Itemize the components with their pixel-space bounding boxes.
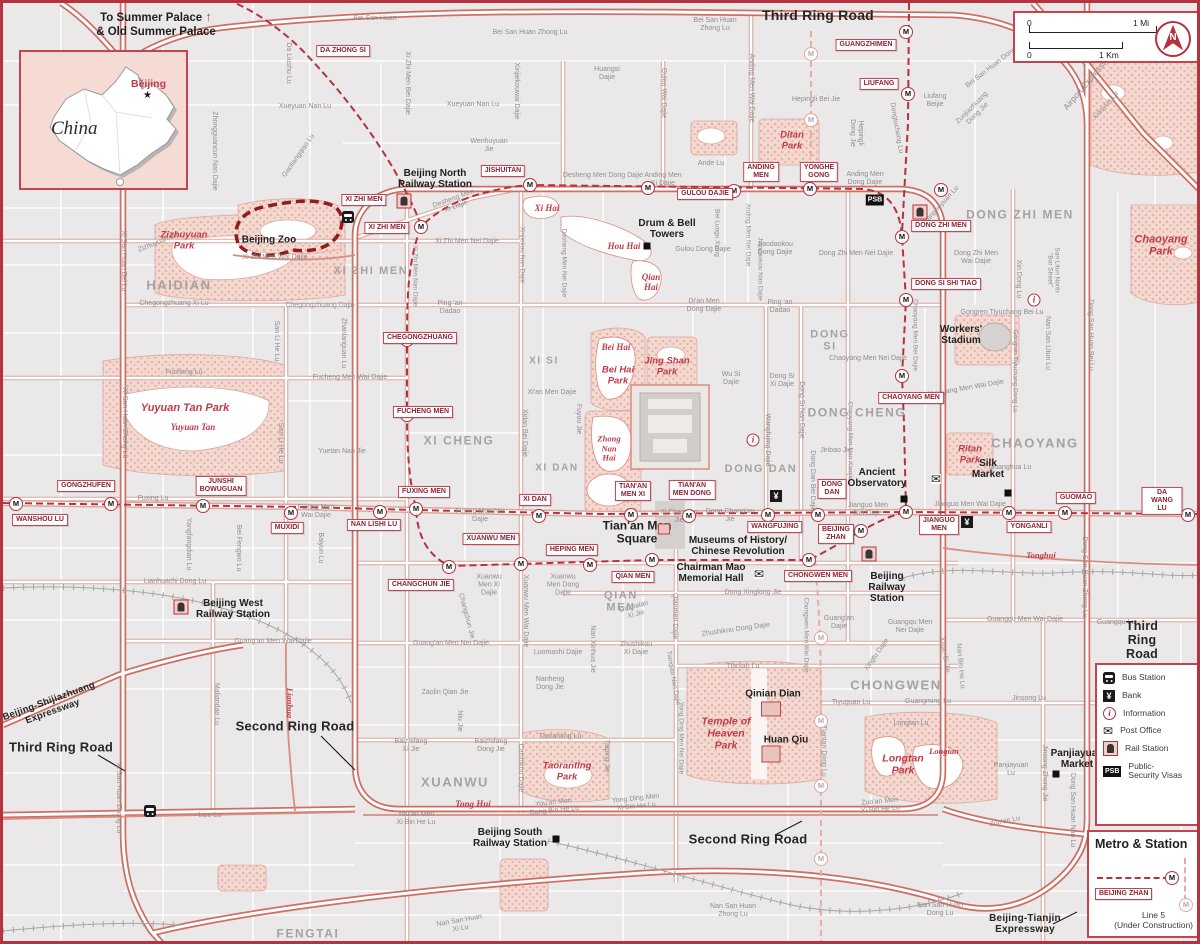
road-label: Ping 'an Dadao [437, 300, 462, 316]
legend-item-label: Post Office [1120, 726, 1161, 736]
road-label: Nan San Huan Xi Lu [436, 913, 484, 936]
metro-m-icon: M [409, 502, 423, 516]
road-label: Xuanwu Men Xi Dajie [476, 573, 501, 596]
metro-m-icon: M [895, 369, 909, 383]
metro-m-icon: M [645, 553, 659, 567]
rail-icon [913, 205, 928, 220]
legend-item: Rail Station [1103, 741, 1193, 756]
road-label: Zuojiazhuang Dong Jie [955, 91, 996, 132]
road-label: Liufang Beijie [924, 93, 947, 109]
road-label: Xi'an Men Dajie [528, 389, 577, 397]
sq-icon [553, 836, 560, 843]
road-label: Di'an Men Dong Dajie [687, 298, 722, 314]
road-label: Dong San Huan Bei Lu [1086, 299, 1094, 371]
landmark-label: Beijing Zoo [242, 234, 296, 245]
metro-m-icon: M [1165, 871, 1179, 885]
road-label: Guangqu Men Wai Dajie [987, 616, 1063, 624]
metro-station-box: XI ZHI MEN [341, 194, 386, 206]
water-label: Longtan [929, 747, 959, 757]
metro-m-icon: M [442, 560, 456, 574]
metro-station-box: DA ZHONG SI [316, 45, 370, 57]
park-label: Jing Shan Park [644, 356, 689, 377]
metro-m-icon: M [1181, 508, 1195, 522]
road-label: Gongren Tiyuchang Bei Lu [961, 309, 1044, 317]
legend-item: ✉Post Office [1103, 726, 1193, 736]
road-label: Nan Xinhua Jie [588, 625, 596, 672]
metro-m-icon: M [514, 557, 528, 571]
legend-item-label: Rail Station [1125, 744, 1168, 754]
road-label: Bei Luogu Xiang [713, 209, 720, 257]
legend-item: iInformation [1103, 707, 1193, 720]
metro-m-icon: M [814, 779, 828, 793]
compass-icon: N [1155, 21, 1191, 57]
metro-station-box: FUCHENG MEN [393, 406, 453, 418]
metro-station-box: GONGZHUFEN [57, 480, 115, 492]
metro-m-icon: M [814, 852, 828, 866]
road-label: Baizhifang Xi Jie [395, 738, 428, 754]
road-label: Wenhuyuan Jie [470, 138, 507, 154]
landmark-label: Drum & Bell Towers [638, 218, 695, 240]
road-label: Chaoyang Men Bei Dajie [911, 299, 918, 371]
metro-m-icon: M [9, 497, 23, 511]
metro-m-icon: M [284, 506, 298, 520]
metro-station-box: LIUFANG [860, 78, 899, 90]
district-label: HAIDIAN [146, 279, 211, 294]
psb-icon: PSB [1103, 766, 1121, 777]
road-label: Yong Ding Men Xi Bin He Lu [612, 793, 661, 814]
mile-ruler [1029, 26, 1157, 33]
metro-station-box: NAN LISHI LU [347, 519, 401, 531]
sq-icon [901, 496, 908, 503]
road-label: Xi Zhi Men Bei Dajie [403, 51, 411, 114]
road-label: Zuo'an Men Xi Bin He Lu [860, 797, 900, 816]
road-label: Jianguo Men Nei Dajie [848, 502, 888, 518]
metro-station-box: GUANGZHIMEN [836, 39, 897, 51]
metro-station-box: MUXIDI [271, 522, 304, 534]
metro-station-box: CHONGWEN MEN [784, 570, 852, 582]
bld-icon [761, 702, 781, 717]
road-label: San Litun North "Bar Street" [1046, 247, 1061, 292]
metro-station-box: TIAN'AN MEN XI [615, 481, 651, 501]
road-label: Xiaoyun Lu [1091, 90, 1120, 121]
road-label: Caishikou Dajie [516, 744, 524, 793]
metro-m-icon: M [624, 508, 638, 522]
summer-palace-note: To Summer Palace ↑ & Old Summer Palace [81, 9, 231, 40]
road-label: Xueyuan Nan Lu [279, 103, 331, 111]
road-label: Xinjiekou Nan Dajie [518, 227, 525, 284]
bank-icon: ¥ [1103, 690, 1115, 702]
landmark-label: Beijing Railway Station [868, 571, 905, 605]
sq-icon [1053, 771, 1060, 778]
road-label: Fuxing Men Wai Dajie [298, 504, 335, 520]
ring-road-label: Third Ring Road [9, 741, 113, 756]
road-label: Xi Zhi Men Nan Dajie [411, 245, 418, 306]
road-label: Baiyun Lu [316, 532, 324, 563]
road-label: Xidan Bei Dajie [520, 409, 528, 457]
road-label: Niu Jie [455, 710, 463, 731]
info-icon: i [1103, 707, 1116, 720]
scale-bar: 0 1 Mi 0 1 Km N [1013, 11, 1199, 63]
ring-road-label: Beijing-Shijiazhuang Expressway [2, 680, 101, 733]
inset-capital-label: Běijing [131, 78, 166, 90]
metro-station-box: DONG ZHI MEN [911, 220, 971, 232]
road-label: Xi San Huan Zhong Lu [114, 763, 122, 834]
inset-country-label: China [51, 118, 97, 140]
metro-m-icon: M [895, 230, 909, 244]
road-label: Lianhuachi Dong Lu [144, 578, 206, 586]
water-label: Xi Hai [535, 203, 560, 213]
road-label: Tiantan Dong Lu [819, 725, 827, 777]
metro-station-box: ANDING MEN [743, 162, 779, 182]
legend-item-label: Information [1123, 709, 1166, 719]
water-label: Qian Hai [642, 272, 661, 292]
road-label: Xuanwu Men Wai Dajie [521, 575, 529, 648]
rail-icon [174, 600, 189, 615]
landmark-label: Chairman Mao Memorial Hall [677, 562, 746, 584]
compass-letter: N [1157, 32, 1189, 43]
road-label: Dong Si Xi Dajie [770, 373, 795, 389]
scale-km-end: 1 Km [1099, 50, 1119, 60]
road-label: Xueyuan Nan Lu [447, 101, 499, 109]
metro-legend: Metro & Station M M BEIJING ZHAN Line 5 … [1087, 830, 1200, 938]
metro-m-icon: M [803, 182, 817, 196]
metro-m-icon: M [802, 553, 816, 567]
road-label: Dong Xinglong Jie [725, 589, 782, 597]
road-label: Bei San Huan Zhong Lu [493, 29, 568, 37]
metro-station-box: DONG DAN [818, 479, 847, 499]
road-label: Xi San Huan Bei Lu [119, 230, 127, 291]
beijing-tourist-map: Bei San HuanBei San Huan Zhong LuBei San… [0, 0, 1200, 944]
road-label: San Li He Lu [276, 423, 284, 463]
bus-icon [1103, 672, 1115, 684]
road-label: Yangfangdian Lu [184, 518, 192, 570]
metro-station-box: CHAOYANG MEN [878, 392, 944, 404]
road-label: Chegongzhuang Xi Lu [139, 300, 208, 308]
road-label: Tiyuguan Lu [832, 699, 870, 707]
metro-station-box: TIAN'AN MEN DONG [669, 480, 716, 500]
metro-m-icon: M [804, 113, 818, 127]
road-label: Lize Lu [199, 812, 222, 820]
road-label: Qianmen Dajie [670, 593, 678, 639]
district-label: XI SI [529, 355, 559, 366]
metro-line-sample [1097, 877, 1169, 879]
road-label: You'an Men Dong Bin He Lu [529, 797, 580, 818]
road-label: Zhushikou Xi Dajie [620, 641, 652, 657]
road-label: Desheng Men Nei Dajie [560, 229, 567, 298]
road-label: Hepingli Dong Jie [848, 119, 864, 147]
road-label: Dong Zhi Men Wai Dajie [954, 250, 998, 266]
road-label: Huangsi Dajie [594, 66, 620, 82]
rail-icon [862, 547, 877, 562]
road-label: Fucheng Lu [166, 369, 203, 377]
metro-station-box: XI ZHI MEN [364, 222, 409, 234]
district-label: CHAOYANG [991, 437, 1078, 452]
road-label: Dong Zhi Men Nei Dajie [819, 250, 893, 258]
metro-station-box: BEIJING ZHAN [818, 524, 854, 544]
landmark-label: Workers' Stadium [940, 324, 982, 346]
road-label: Chongwen Men Wai Dajie [802, 598, 809, 673]
park-label: Temple of Heaven Park [701, 716, 750, 751]
metro-station-box: GUOMAO [1056, 492, 1096, 504]
road-label: Hepingli Bei Jie [792, 96, 840, 104]
bld-icon [658, 524, 670, 535]
road-label: Chaoyang Men Nei Dajie [829, 355, 907, 363]
metro-station-box: WANGFUJING [747, 521, 802, 533]
road-label: Taoranting Lu [539, 733, 581, 741]
summer-palace-line2: & Old Summer Palace [81, 26, 231, 40]
district-label: XI DAN [535, 462, 579, 473]
metro-station-box: JUNSHI BOWUGUAN [196, 476, 247, 496]
road-label: Dong San Huan Nan Lu [1068, 773, 1076, 847]
rail-icon [397, 194, 412, 209]
legend-item: PSBPublic- Security Visas [1103, 762, 1193, 782]
road-label: Zaolin Qian Jie [422, 689, 469, 697]
china-inset-map: China Běijing ★ [19, 50, 188, 190]
metro-m-icon: M [1058, 506, 1072, 520]
ring-road-label: Second Ring Road [236, 720, 355, 735]
road-label: Longtan Lu [893, 720, 928, 728]
metro-m-icon: M [804, 47, 818, 61]
road-label: Zhanlanguan Lu [339, 318, 347, 369]
road-label: Ande Lu [698, 160, 724, 168]
road-label: Zhongguancun Nan Dajie [210, 111, 218, 190]
road-label: Dong San Huan Zhong Lu [1080, 536, 1088, 617]
water-label: Tonghui [1026, 551, 1055, 561]
road-label: Xinjiekouwai Dajie [512, 63, 520, 120]
landmark-label: Museums of History/ Chinese Revolution [689, 535, 787, 557]
scale-km-start: 0 [1027, 50, 1032, 60]
park-label: Ditan Park [780, 130, 804, 151]
line5-caption: Line 5 (Under Construction) [1114, 910, 1193, 930]
landmark-label: Beijing West Railway Station [196, 598, 270, 620]
metro-station-box: FUXING MEN [398, 486, 450, 498]
road-label: Jianguo Men Wai Dajie [934, 501, 1006, 509]
water-label: Zhong Nan Hai [597, 435, 620, 464]
road-label: Yong Ding Men Nei Dajie [677, 702, 684, 774]
landmark-label: Huan Qiu [764, 734, 808, 745]
road-label: Chegongzhuang Dajie [285, 302, 354, 310]
metro-m-icon: M [532, 509, 546, 523]
ring-road-label: Third Ring Road [1112, 619, 1173, 661]
bld-icon [762, 746, 781, 763]
road-label: Guang'an Men Wai Dajie [234, 638, 311, 646]
water-label: Bei Hai [602, 342, 631, 352]
road-label: Guang'an Men Nei Dajie [413, 640, 489, 648]
district-label: DONG CHENG [808, 406, 907, 419]
landmark-label: Ancient Observatory [848, 467, 907, 489]
road-label: Wangfujing Dajie [763, 414, 771, 467]
park-label: Yuyuan Tan Park [141, 402, 229, 414]
metro-m-icon: M [899, 505, 913, 519]
road-label: Nan San Huan Dong Lu [917, 902, 963, 918]
legend-items: Bus Station¥BankiInformation✉Post Office… [1103, 672, 1193, 781]
legend-item: Bus Station [1103, 672, 1193, 684]
metro-station-box: GULOU DAJIE [677, 188, 733, 200]
water-label: Lianhua [284, 688, 294, 718]
road-label: Anding Men Nei Dajie [744, 204, 751, 267]
metro-m-icon: M [583, 558, 597, 572]
district-label: FENGTAI [277, 927, 340, 940]
road-label: Anding Men Wai Dajie [747, 54, 755, 123]
metro-m-icon: M [811, 508, 825, 522]
ring-road-label: Third Ring Road [762, 8, 874, 24]
landmark-label: Beijing North Railway Station [398, 168, 472, 190]
metro-m-icon: M [1002, 506, 1016, 520]
road-label: Zuo'an Lu [989, 815, 1021, 829]
metro-m-icon: M [814, 714, 828, 728]
road-label: Da Liushu Lu [284, 42, 292, 83]
post-icon: ✉ [1103, 726, 1113, 736]
water-label: Hou Hai [608, 241, 641, 251]
district-label: DONG ZHI MEN [966, 208, 1074, 221]
ring-road-label: Second Ring Road [689, 833, 808, 848]
road-label: Bei San Huan [353, 15, 396, 23]
bank-icon: ¥ [770, 490, 782, 502]
info-icon: i [747, 434, 760, 447]
road-label: Desheng Men Xi Dajie [432, 188, 478, 218]
road-label: You'an Men Xi Bin He Lu [397, 811, 436, 827]
metro-m-icon: M [414, 220, 428, 234]
road-label: Fuxing Lu [138, 495, 169, 503]
metro-m-icon: M [934, 183, 948, 197]
road-label: Anding Men Dong Dajie [846, 171, 883, 187]
metro-station-box: HEPING MEN [546, 544, 598, 556]
road-label: Gulou Wai Dajie [659, 68, 667, 118]
bank-icon: ¥ [961, 516, 973, 528]
district-label: XUANWU [421, 776, 489, 791]
road-label: Gongren Tiyuchang Dong Lu [1011, 329, 1018, 412]
park-label: Zizhuyuan Park [161, 230, 208, 251]
sq-icon [1005, 490, 1012, 497]
park-label: Taoranting Park [543, 761, 592, 782]
road-label: Tiantan Lu [727, 663, 760, 671]
metro-m-icon: M [899, 25, 913, 39]
road-label: Dong Si Nan Dajie [797, 381, 805, 439]
bus-icon [144, 805, 156, 817]
road-label: Xingfu Dajie [863, 637, 891, 672]
china-shape [21, 52, 186, 188]
metro-m-icon: M [682, 509, 696, 523]
bus-icon [342, 211, 354, 223]
water-label: Tong Hui [455, 799, 490, 809]
road-label: Nanheng Dong Jie [536, 676, 564, 692]
metro-station-box: CHANGCHUN JIE [388, 579, 454, 591]
metro-m-icon: M [899, 293, 913, 307]
info-icon: i [1028, 294, 1041, 307]
park-label: Chaoyang Park [1134, 234, 1187, 259]
road-label: Baizhifang Dong Jie [475, 738, 508, 754]
road-label: Xin Dong Lu [1014, 260, 1022, 299]
metro-station-box: CHEGONGZHUANG [383, 332, 457, 344]
metro-station-box: DA WANG LU [1142, 487, 1183, 515]
metro-station-box: YONGHE GONG [800, 162, 838, 182]
road-label: Changchun Jie [456, 592, 476, 639]
landmark-label: Silk Market [972, 458, 1004, 480]
station-box-sample: BEIJING ZHAN [1095, 888, 1152, 900]
landmark-label: Qinian Dian [745, 688, 801, 699]
road-label: Jinsong Zhong Jie [1040, 745, 1048, 802]
metro-m-icon: M [641, 181, 655, 195]
road-label: Xijiao Si Jie [937, 637, 951, 674]
legend-item-label: Bus Station [1122, 673, 1165, 683]
road-label: Guang'an Dajie [824, 615, 854, 631]
road-label: Fuyou Jie [574, 404, 582, 434]
road-label: Nan San Litun Lu [1043, 316, 1051, 370]
road-label: Xi Zhi Men Nei Dajie [435, 238, 499, 246]
road-label: Zhushikou Dong Dajie [701, 621, 770, 638]
road-label: Gulou Dong Dajie [675, 246, 730, 254]
road-label: Taiping Jie [602, 739, 610, 772]
metro-m-icon: M [196, 499, 210, 513]
summer-palace-line1: To Summer Palace [100, 12, 202, 24]
road-label: Guangqu Men Nei Dajie [888, 619, 932, 635]
legend-item-label: Bank [1122, 691, 1141, 701]
road-label: Xuanwu Men Dong Dajie [547, 573, 579, 596]
road-label: Bei San Huan Zhong Lu [693, 17, 736, 33]
metro-station-box: XI DAN [519, 494, 551, 506]
road-label: Xi San Huan Zhong Lu [120, 388, 128, 459]
road-label: Xi Zhi Men Wai Dajie [242, 254, 307, 262]
road-label: Fuxing Men Nei Dajie [455, 508, 504, 524]
ring-road-label: Beijing-Tianjin Expressway [989, 913, 1061, 935]
road-label: Jinsong Lu [1012, 695, 1046, 703]
road-label: Bei Fengwo Lu [234, 525, 242, 572]
psb-icon: PSB [866, 195, 884, 206]
district-label: XI CHENG [424, 434, 495, 447]
district-label: XI ZHI MEN [334, 265, 409, 277]
road-label: Nan Bin He Lu [954, 643, 966, 689]
park-label: Bei Hai Park [602, 365, 634, 386]
metro-station-box: XUANWU MEN [463, 533, 520, 545]
road-label: Dong Dan Bei Dajie [808, 450, 816, 511]
metro-station-box: YONGANLI [1007, 521, 1052, 533]
metro-station-box: JISHUITAN [481, 165, 525, 177]
map-legend: Bus Station¥BankiInformation✉Post Office… [1095, 663, 1200, 826]
road-label: Desheng Men Dong Dajie [563, 172, 643, 180]
metro-station-box: JIANGUO MEN [919, 515, 959, 535]
road-label: Yuetan Nan Jie [318, 448, 365, 456]
metro-m-icon: M [373, 505, 387, 519]
road-label: Guangming Lu [905, 698, 951, 706]
road-label: Dongtucheng Lu [888, 102, 905, 154]
road-label: Tianqiao Nan Dajie [665, 650, 682, 705]
km-ruler [1029, 42, 1123, 49]
metro-m-icon: M [761, 508, 775, 522]
district-label: DONG DAN [725, 463, 798, 475]
metro-station-box: DONG SI SHI TIAO [911, 278, 981, 290]
road-label: Luomashi Dajie [534, 649, 582, 657]
legend-item-label: Public- Security Visas [1128, 762, 1182, 782]
metro-legend-title: Metro & Station [1095, 837, 1187, 851]
road-label: Gaoliangqiao Lu [281, 133, 317, 179]
metro-m-icon: M [854, 524, 868, 538]
road-label: San Li He Lu [272, 321, 280, 361]
road-label: Wu Si Dajie [722, 371, 741, 387]
sq-icon [644, 243, 651, 250]
road-label: Jiaodaokou Nan Dajie [756, 237, 763, 301]
park-label: Longtan Park [882, 753, 923, 777]
metro-m-icon: M [523, 178, 537, 192]
road-label: Fucheng Men Wai Dajie [313, 374, 387, 382]
metro-m-icon: M [901, 87, 915, 101]
legend-item: ¥Bank [1103, 690, 1193, 702]
post-icon: ✉ [754, 569, 764, 579]
road-label: Nan San Huan Zhong Lu [710, 903, 756, 919]
north-arrow-icon: ↑ [205, 9, 212, 24]
metro-m-icon: M [104, 497, 118, 511]
district-label: QIAN MEN [604, 590, 638, 615]
landmark-label: Beijing South Railway Station [473, 827, 547, 849]
